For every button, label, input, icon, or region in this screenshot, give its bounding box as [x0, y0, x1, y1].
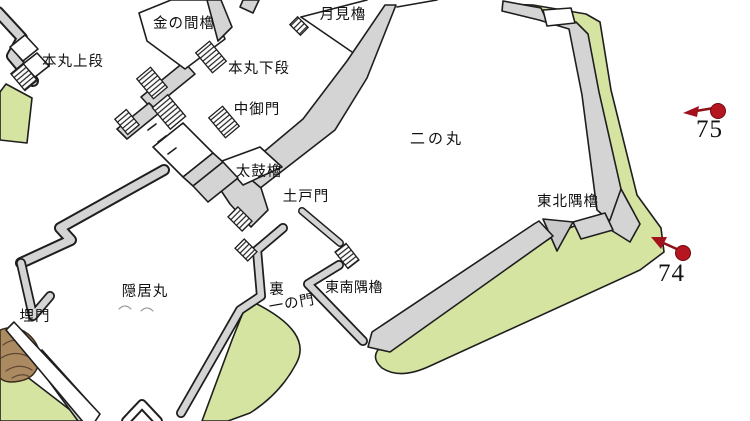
label-tsukimi-yagura: 月見櫓: [320, 8, 367, 23]
label-honmaru-jodan: 本丸上段: [42, 55, 104, 70]
label-tsuchido-mon: 土戸門: [283, 190, 330, 205]
garden-marks: [119, 306, 153, 311]
label-naka-gomon: 中御門: [234, 103, 281, 118]
castle-map-drawing: [0, 0, 750, 421]
label-ninomaru: 二の丸: [410, 133, 464, 148]
marker-75-number: 75: [696, 117, 723, 142]
label-taiko-yagura: 太鼓櫓: [236, 165, 283, 180]
label-tohoku-sumi-yagura: 東北隅櫓: [537, 195, 599, 210]
label-ura-ichi-no-mon-1: 裏: [269, 283, 285, 298]
castle-map: 金の間櫓 月見櫓 本丸上段 本丸下段 中御門 太鼓櫓 土戸門 二の丸 東北隅櫓 …: [0, 0, 750, 421]
label-inkyo-maru: 隠居丸: [122, 285, 169, 300]
label-honmaru-gedan: 本丸下段: [228, 62, 290, 77]
marker-74-number: 74: [658, 261, 685, 286]
marker-74-dot-icon: [676, 246, 691, 261]
label-kin-no-ma-yagura: 金の間櫓: [153, 17, 215, 32]
label-tonan-sumi-yagura: 東南隅櫓: [325, 282, 383, 296]
inkyo-maru-north-wall: [21, 170, 164, 263]
label-uzumi-mon: 埋門: [20, 310, 51, 325]
